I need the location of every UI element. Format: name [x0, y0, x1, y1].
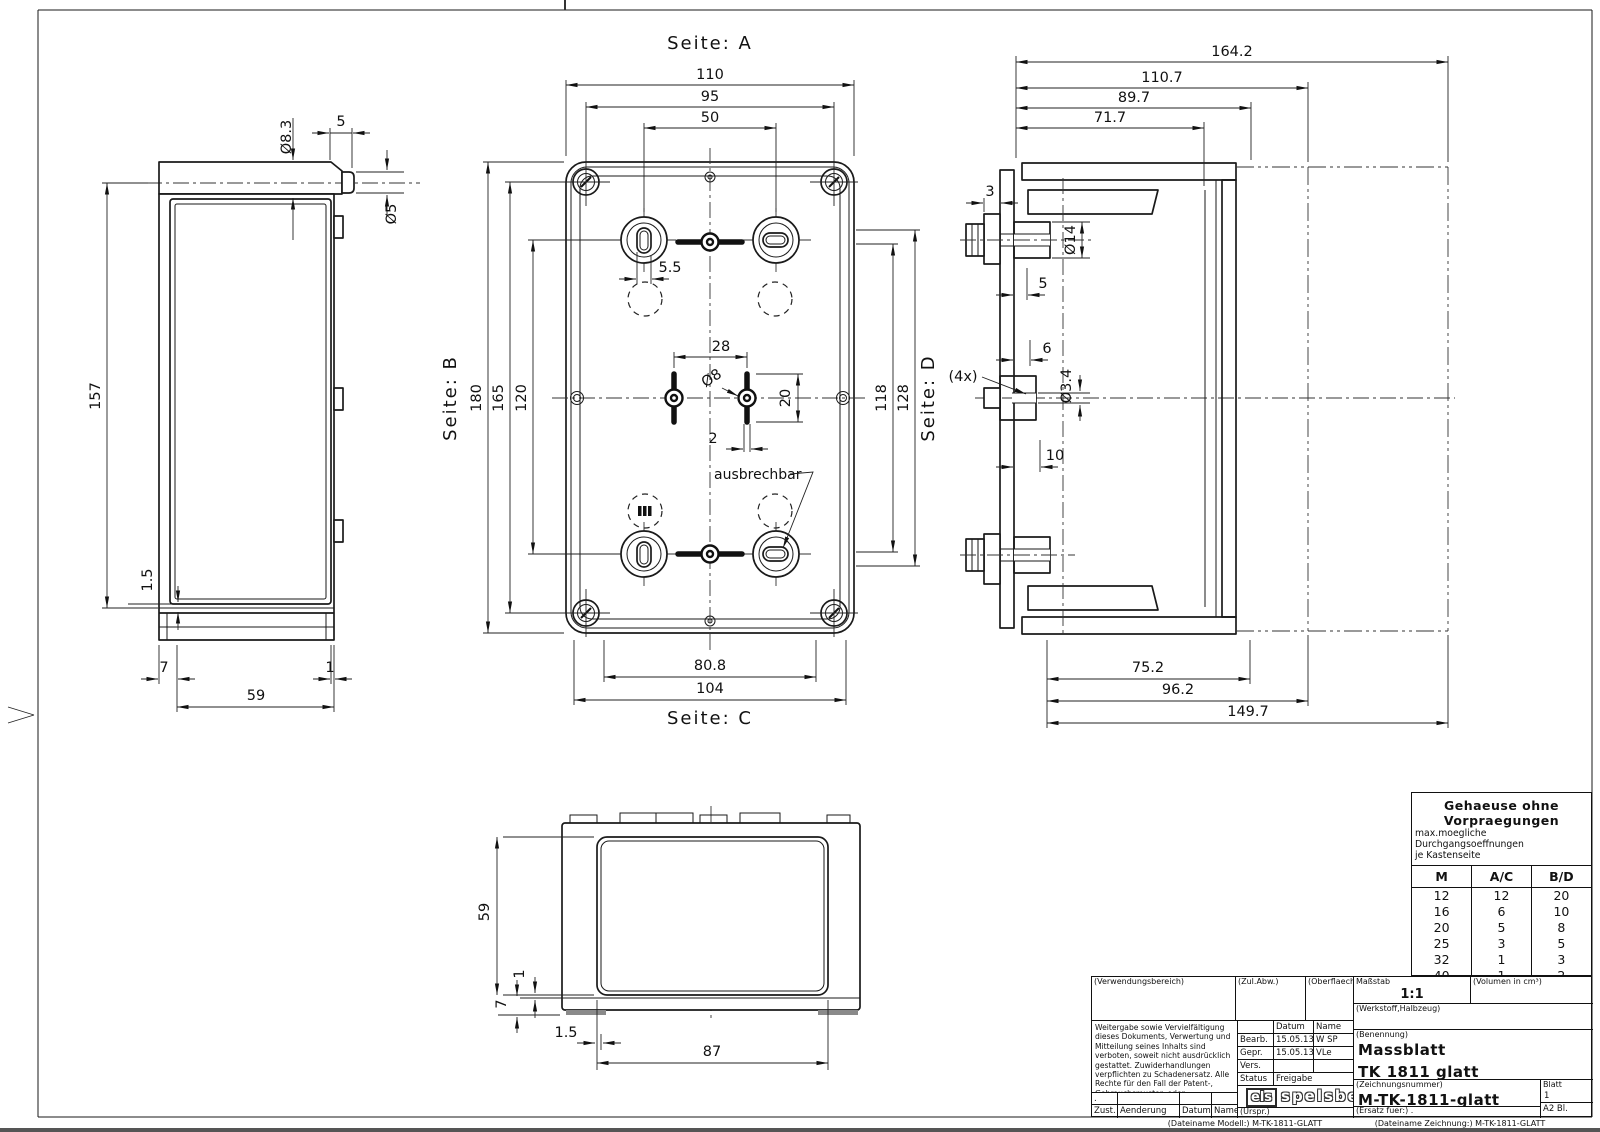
- note-knockout: ausbrechbar: [714, 467, 802, 483]
- cell: 12: [1472, 887, 1532, 904]
- label: Datum: [1276, 1022, 1305, 1032]
- cell-rev-empty3: [1212, 1093, 1238, 1105]
- dim-screw-hole-dia: Ø3.4: [1059, 369, 1075, 403]
- cell-gepr-label: Gepr.: [1238, 1047, 1274, 1060]
- dim-web-width: 2: [708, 431, 717, 447]
- knockout-table-header: M A/C B/D: [1412, 865, 1591, 887]
- cell-datum-col: Datum: [1180, 1105, 1212, 1118]
- label: (Oberflaeche): [1308, 977, 1354, 986]
- cell: 25: [1412, 936, 1472, 952]
- table-row: 3213: [1412, 952, 1591, 968]
- legal-text: Weitergabe sowie Vervielfältigung dieses…: [1095, 1023, 1230, 1093]
- dim-bottom-mid: 96.2: [1162, 682, 1194, 698]
- cell-ersatz: (Ersatz fuer:) .: [1354, 1107, 1541, 1118]
- cell-datum-header: Datum: [1274, 1021, 1314, 1034]
- cell-status-value: Freigabe: [1274, 1073, 1354, 1086]
- knockout-table-subtitle: max.moegliche Durchgangsoeffnungen je Ka…: [1412, 828, 1591, 865]
- scale-value: 1:1: [1354, 987, 1470, 1002]
- label-seite-d: Seite: D: [918, 354, 939, 441]
- format-value: A2 Bl.: [1543, 1104, 1568, 1114]
- dim-pin-end-dia: Ø5: [384, 204, 400, 225]
- dim-gland-spacing-y: 120: [514, 384, 530, 412]
- cell: 8: [1531, 920, 1591, 936]
- label: Bearb.: [1240, 1035, 1268, 1045]
- cell-approval-corner: [1238, 1021, 1274, 1034]
- filename-drawing: (Dateiname Zeichnung:) M-TK-1811-GLATT: [1330, 1119, 1590, 1128]
- cell-urspr: (Urspr.): [1238, 1108, 1354, 1118]
- cell: 3: [1472, 936, 1532, 952]
- label: Datum: [1182, 1106, 1211, 1116]
- dim-flange-depth: 5: [1038, 276, 1047, 292]
- dim-screw-spacing-x: 95: [701, 89, 719, 105]
- dim-bottom-outer: 104: [696, 681, 724, 697]
- dim-bv-width: 87: [703, 1044, 721, 1060]
- cell: 1: [1472, 952, 1532, 968]
- paper-edge: [0, 1128, 1600, 1132]
- label: Maßstab: [1354, 977, 1470, 987]
- cell-vers-datum: [1274, 1060, 1314, 1073]
- dim-depth-open: 110.7: [1141, 70, 1183, 86]
- col-ac: A/C: [1472, 865, 1532, 887]
- cell: 5: [1531, 936, 1591, 952]
- mold-stamp-icon: [638, 506, 652, 516]
- part-name: TK 1811 glatt: [1354, 1059, 1593, 1080]
- cell-zul-abw: (Zul.Abw.): [1236, 977, 1306, 1021]
- cell: 12: [1412, 887, 1472, 904]
- dim-knockout-height: 20: [778, 389, 794, 407]
- dim-bv-lip: 1: [512, 969, 528, 978]
- dim-knockout-spacing: 28: [712, 339, 730, 355]
- cell-vers-label: Vers.: [1238, 1060, 1274, 1073]
- cell-verwendungsbereich: (Verwendungsbereich): [1092, 977, 1236, 1021]
- cell-vers-name: [1314, 1060, 1354, 1073]
- section-geometry: [960, 163, 1455, 636]
- cell-legal-notice: Weitergabe sowie Vervielfältigung dieses…: [1092, 1021, 1238, 1093]
- dim-outer-spacing-y: 128: [896, 384, 912, 412]
- dim-depth: 59: [247, 688, 265, 704]
- table-row: 2535: [1412, 936, 1591, 952]
- dim-height-outer: 180: [469, 384, 485, 412]
- dim-bottom-inner: 80.8: [694, 658, 726, 674]
- dim-bottom-total: 149.7: [1227, 704, 1269, 720]
- drawing-sheet: Ø8.3 5 Ø5 157 1.5: [0, 0, 1600, 1132]
- view-front: Seite: A Seite: C Seite: B Seite: D 110 …: [440, 33, 939, 729]
- cell-bearb-name: W SP: [1314, 1034, 1354, 1047]
- view-side-left: Ø8.3 5 Ø5 157 1.5: [88, 114, 420, 712]
- cell-aenderung: Aenderung: [1118, 1105, 1180, 1118]
- dim-wall: 3: [985, 184, 994, 200]
- label-seite-a: Seite: A: [667, 33, 753, 54]
- cell-rev-empty2: [1180, 1093, 1212, 1105]
- logo-els-icon: els: [1246, 1088, 1277, 1107]
- dim-lid-gap: 1.5: [140, 568, 156, 591]
- label-seite-c: Seite: C: [667, 708, 753, 729]
- label: Blatt: [1541, 1080, 1593, 1090]
- cell-blatt: Blatt 1: [1541, 1080, 1593, 1103]
- cell-bearb-label: Bearb.: [1238, 1034, 1274, 1047]
- label: (Volumen in cm³): [1473, 977, 1542, 986]
- dim-rib-depth: 6: [1042, 341, 1051, 357]
- label: (Werkstoff,Halbzeug): [1356, 1004, 1440, 1013]
- dim-depth-inner: 71.7: [1094, 110, 1126, 126]
- dim-total-depth: 164.2: [1211, 44, 1253, 60]
- value: W SP: [1316, 1035, 1338, 1045]
- dim-bv-height: 59: [477, 903, 493, 921]
- drawing-canvas: Ø8.3 5 Ø5 157 1.5: [0, 0, 1600, 1132]
- label: (Zul.Abw.): [1238, 977, 1278, 986]
- cell-rev-dot: .: [1092, 1093, 1118, 1105]
- knockout-table-title: Gehaeuse ohne Vorpraegungen: [1412, 793, 1591, 828]
- label: (Benennung): [1354, 1030, 1593, 1040]
- dim-screw-hole-count: (4x): [948, 369, 977, 385]
- view-bottom: 59 1 7 1.5 87: [477, 806, 860, 1070]
- cell-zust: Zust.: [1092, 1105, 1118, 1118]
- cell-werkstoff: (Werkstoff,Halbzeug): [1354, 1004, 1593, 1030]
- value: VLe: [1316, 1048, 1332, 1058]
- label: Vers.: [1240, 1061, 1261, 1071]
- table-row: 121220: [1412, 887, 1591, 904]
- cell-format: A2 Bl.: [1541, 1103, 1593, 1118]
- label: Gepr.: [1240, 1048, 1263, 1058]
- label: Name: [1316, 1022, 1341, 1032]
- cell: 5: [1472, 920, 1532, 936]
- cell-massstab: Maßstab 1:1: [1354, 977, 1471, 1004]
- spelsberg-logo: elsspelsberg: [1238, 1086, 1354, 1108]
- dim-rear-offset: 1: [325, 660, 334, 676]
- dim-screw-spacing-y: 165: [491, 384, 507, 412]
- cell-status-label: Status: [1238, 1073, 1274, 1086]
- dim-depth-outer: 89.7: [1118, 90, 1150, 106]
- cell: 20: [1412, 920, 1472, 936]
- label: Status: [1240, 1074, 1267, 1084]
- dim-base-depth: 10: [1046, 448, 1064, 464]
- drawing-number: M-TK-1811-glatt: [1354, 1090, 1540, 1107]
- cell: 20: [1531, 887, 1591, 904]
- cell-gepr-name: VLe: [1314, 1047, 1354, 1060]
- cell-gepr-datum: 15.05.13: [1274, 1047, 1314, 1060]
- section-dimensions: 164.2 110.7 89.7 71.7 3 Ø14 5 6: [948, 44, 1448, 728]
- side-view-geometry: [146, 162, 420, 640]
- dim-slot-width: 5.5: [658, 260, 681, 276]
- dim-height: 157: [88, 382, 104, 410]
- centering-arrow-icon: [8, 707, 34, 723]
- dim-gland-spacing-x: 50: [701, 110, 719, 126]
- cell: 32: [1412, 952, 1472, 968]
- dim-width: 110: [696, 67, 724, 83]
- cell: 16: [1412, 904, 1472, 920]
- label-seite-b: Seite: B: [440, 355, 461, 441]
- logo-wordmark: spelsberg: [1281, 1087, 1354, 1105]
- dim-pin-length: 5: [336, 114, 345, 130]
- dim-pin-dia: Ø8.3: [279, 120, 295, 154]
- dim-boss-dia: Ø14: [1063, 225, 1079, 255]
- dim-bottom-inner-sec: 75.2: [1132, 660, 1164, 676]
- label: (Zeichnungsnummer): [1354, 1080, 1540, 1090]
- table-row: 2058: [1412, 920, 1591, 936]
- bottom-geometry: [562, 806, 860, 1022]
- cell-volumen: (Volumen in cm³): [1471, 977, 1593, 1004]
- knockout-table-subtitle-line2: je Kastenseite: [1415, 850, 1481, 861]
- dim-bv-inset: 1.5: [554, 1025, 577, 1041]
- table-row: 16610: [1412, 904, 1591, 920]
- cell-zeichnungsnummer: (Zeichnungsnummer) M-TK-1811-glatt: [1354, 1080, 1541, 1107]
- cell-rev-empty1: [1118, 1093, 1180, 1105]
- cell-name-col: Name: [1212, 1105, 1238, 1118]
- label: .: [1094, 1094, 1097, 1104]
- knockout-table-subtitle-line1: max.moegliche Durchgangsoeffnungen: [1415, 828, 1524, 850]
- cell-bearb-datum: 15.05.13: [1274, 1034, 1314, 1047]
- col-bd: B/D: [1531, 865, 1591, 887]
- cell-benennung: (Benennung) Massblatt TK 1811 glatt: [1354, 1030, 1593, 1080]
- value: 15.05.13: [1276, 1035, 1314, 1045]
- label: (Verwendungsbereich): [1094, 977, 1184, 986]
- value: Freigabe: [1276, 1074, 1312, 1084]
- label: Aenderung: [1120, 1106, 1167, 1116]
- dim-front-offset: 7: [159, 660, 168, 676]
- label: Zust.: [1094, 1106, 1116, 1116]
- view-section: 164.2 110.7 89.7 71.7 3 Ø14 5 6: [948, 44, 1455, 728]
- dim-bv-foot: 7: [494, 999, 510, 1008]
- title-block: (Verwendungsbereich) (Zul.Abw.) (Oberfla…: [1091, 976, 1592, 1117]
- sheet-number: 1: [1541, 1090, 1593, 1101]
- cell: 10: [1531, 904, 1591, 920]
- col-m: M: [1412, 865, 1472, 887]
- cell: 3: [1531, 952, 1591, 968]
- label: (Urspr.): [1240, 1108, 1270, 1116]
- knockout-table: Gehaeuse ohne Vorpraegungen max.moeglich…: [1411, 792, 1592, 976]
- part-title: Massblatt: [1354, 1040, 1593, 1059]
- dim-inner-spacing-y: 118: [874, 384, 890, 412]
- label: Name: [1214, 1106, 1238, 1116]
- cell-oberflaeche: (Oberflaeche): [1306, 977, 1354, 1021]
- front-outline: [552, 148, 868, 652]
- value: 15.05.13: [1276, 1048, 1314, 1058]
- cell-name-header: Name: [1314, 1021, 1354, 1034]
- cell: 6: [1472, 904, 1532, 920]
- label: (Ersatz fuer:) .: [1356, 1107, 1413, 1115]
